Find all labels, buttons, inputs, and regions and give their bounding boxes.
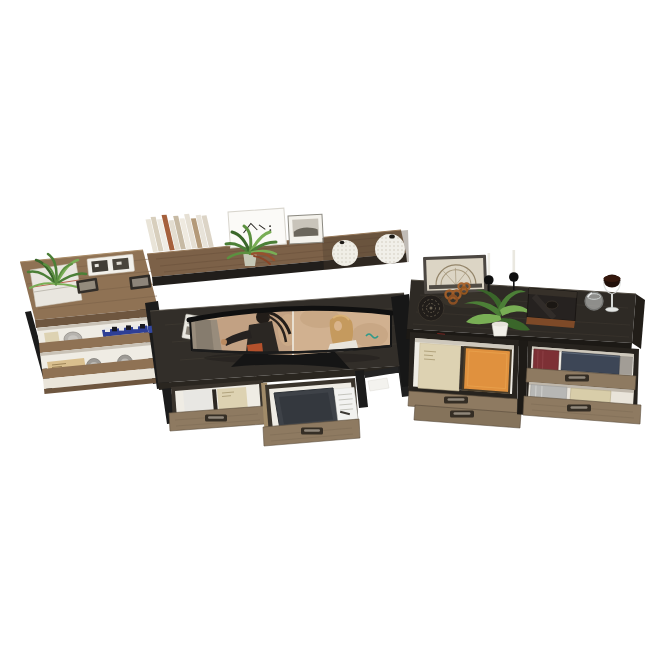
handle-bar [571,406,588,409]
photo-frame [288,214,323,244]
display-box [526,288,577,328]
handle-bar [448,398,465,401]
book-cream-large [418,343,461,391]
desk [145,293,412,446]
tumbler-glass [585,292,603,310]
picture-frame-flat [129,274,151,289]
handle-bar [208,416,224,419]
furniture-scene [0,0,650,650]
cabinet-left-section [408,332,521,428]
book-row [145,211,214,253]
cubby-shadow-right [619,356,633,375]
book-red [533,349,559,371]
handle-bar [569,376,586,379]
hutch-shelf [145,208,409,286]
decor-sphere [375,234,405,264]
handle-bar [454,412,471,415]
left-bookcase [20,250,167,394]
right-cabinet [391,250,645,428]
desk-drawer-center [261,378,360,446]
cabinet-right-section [523,341,641,424]
product-render-canvas [0,0,650,650]
candlestick [509,250,519,290]
loose-paper [368,378,389,391]
handle-bar [304,429,320,432]
laptop-lid-inner [279,393,333,425]
desk-drawer-left [169,380,265,431]
woman-face [334,321,342,331]
framed-art [423,255,487,294]
decor-sphere [332,240,358,266]
decor-disc [418,295,444,321]
